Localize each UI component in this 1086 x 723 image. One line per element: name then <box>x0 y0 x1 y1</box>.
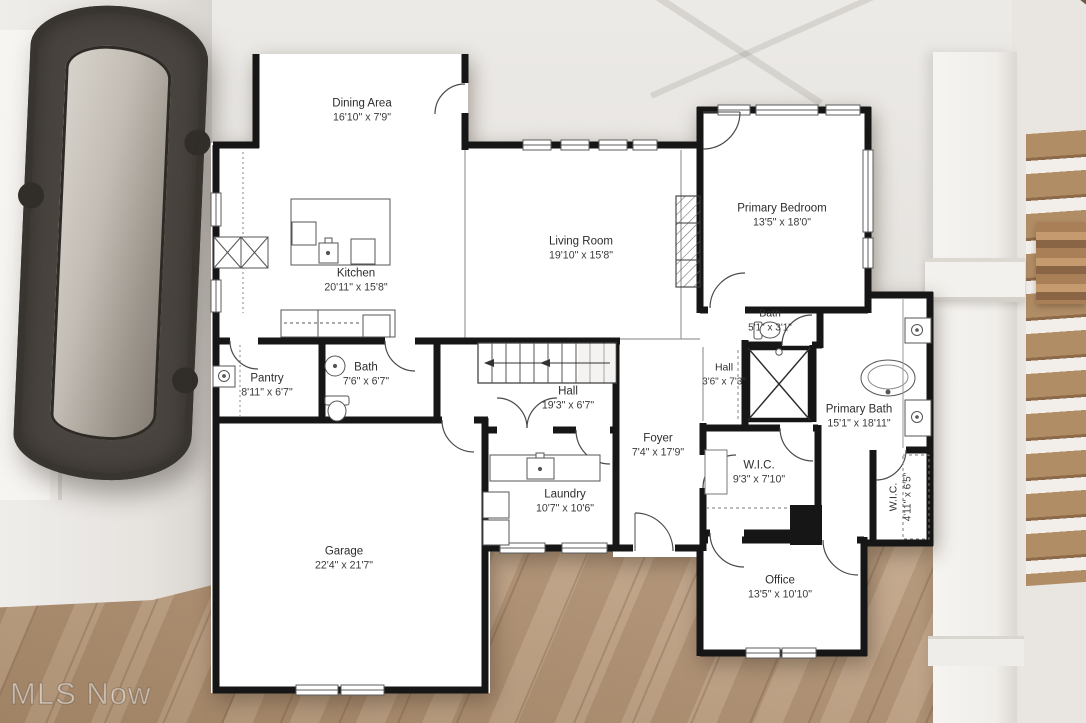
wall-mass <box>790 505 822 545</box>
pantry-sink-icon <box>213 366 235 387</box>
room-dims: 22'4" x 21'7" <box>315 560 373 574</box>
bathtub-icon <box>861 360 915 396</box>
room-name: Bath <box>343 360 389 375</box>
room-name: Living Room <box>549 234 613 249</box>
room-dims: 3'6" x 7'3" <box>702 375 746 388</box>
room-name: Laundry <box>536 487 594 502</box>
floor-plan <box>0 0 1086 723</box>
room-name: Pantry <box>241 371 292 386</box>
room-label-primary-bath: Primary Bath 15'1" x 18'11" <box>826 402 892 431</box>
room-dims: 13'5" x 18'0" <box>737 217 826 231</box>
room-label-wic-small: W.I.C. 4'11" x 6'5" <box>887 473 914 522</box>
room-dims: 10'7" x 10'6" <box>536 503 594 517</box>
room-name: Hall <box>702 361 746 375</box>
fireplace <box>676 196 700 287</box>
screenshot-root: Dining Area 16'10" x 7'9" Kitchen 20'11"… <box>0 0 1086 723</box>
room-name: Garage <box>315 544 373 559</box>
room-name: Primary Bath <box>826 402 892 417</box>
room-label-living-room: Living Room 19'10" x 15'8" <box>549 234 613 263</box>
room-dims: 20'11" x 15'8" <box>324 282 387 296</box>
room-label-hall-small: Hall 3'6" x 7'3" <box>702 361 746 388</box>
room-dims: 19'10" x 15'8" <box>549 250 613 264</box>
kitchen-counter <box>281 310 395 337</box>
room-dims: 9'3" x 7'10" <box>733 474 785 488</box>
room-name: Foyer <box>632 431 684 446</box>
room-name: Dining Area <box>332 96 391 111</box>
room-label-primary-bedroom: Primary Bedroom 13'5" x 18'0" <box>737 201 826 230</box>
room-name: Kitchen <box>324 266 387 281</box>
kitchen-island <box>291 199 390 265</box>
room-label-hall: Hall 19'3" x 6'7" <box>542 384 594 413</box>
room-dims: 13'5" x 10'10" <box>748 589 812 603</box>
room-label-office: Office 13'5" x 10'10" <box>748 573 812 602</box>
room-name: Office <box>748 573 812 588</box>
room-label-garage: Garage 22'4" x 21'7" <box>315 544 373 573</box>
room-dims: 16'10" x 7'9" <box>332 112 391 126</box>
room-label-laundry: Laundry 10'7" x 10'6" <box>536 487 594 516</box>
mls-watermark: MLS Now <box>10 676 151 712</box>
room-name: Primary Bedroom <box>737 201 826 216</box>
room-dims: 19'3" x 6'7" <box>542 400 594 414</box>
room-label-bath: Bath 7'6" x 6'7" <box>343 360 389 389</box>
room-label-dining-area: Dining Area 16'10" x 7'9" <box>332 96 391 125</box>
room-label-wic: W.I.C. 9'3" x 7'10" <box>733 458 785 487</box>
room-name: W.I.C. <box>887 473 901 522</box>
room-name: W.I.C. <box>733 458 785 473</box>
room-label-foyer: Foyer 7'4" x 17'9" <box>632 431 684 460</box>
room-dims: 7'6" x 6'7" <box>343 376 389 390</box>
room-dims: 8'11" x 6'7" <box>241 387 292 401</box>
room-label-kitchen: Kitchen 20'11" x 15'8" <box>324 266 387 295</box>
room-label-bath-small: Bath 5'1" x 3'1" <box>748 307 792 334</box>
room-dims: 15'1" x 18'11" <box>826 418 892 432</box>
room-dims: 4'11" x 6'5" <box>901 473 914 522</box>
room-dims: 7'4" x 17'9" <box>632 447 684 461</box>
stairs <box>478 343 616 383</box>
room-label-pantry: Pantry 8'11" x 6'7" <box>241 371 292 400</box>
room-name: Bath <box>748 307 792 321</box>
room-name: Hall <box>542 384 594 399</box>
stove-icon <box>214 237 268 268</box>
shower <box>748 348 810 420</box>
room-dims: 5'1" x 3'1" <box>748 321 792 334</box>
